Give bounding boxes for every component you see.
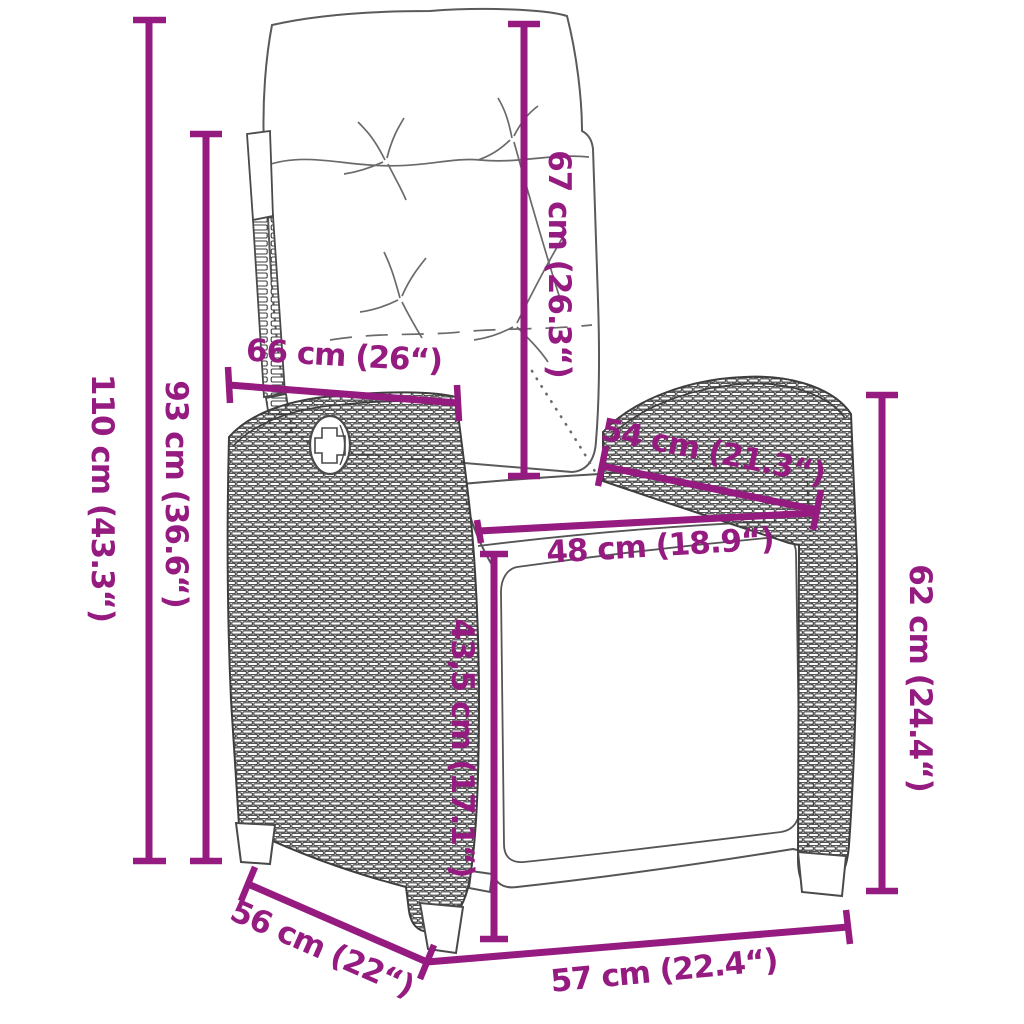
chair-line-drawing — [0, 0, 1024, 1024]
dimension-label-side-height: 62 cm (24.4“) — [902, 564, 938, 792]
dimension-label-back-cushion-length: 67 cm (26.3“) — [541, 150, 577, 378]
dimension-label-footrest-height: 43,5 cm (17.1“) — [444, 619, 480, 878]
dimension-back-height — [190, 134, 222, 861]
dimension-side-height — [866, 395, 898, 891]
dimension-diagram: 110 cm (43.3“) 93 cm (36.6“) 66 cm (26“)… — [0, 0, 1024, 1024]
dimension-label-back-height: 93 cm (36.6“) — [158, 380, 194, 608]
right-leg — [798, 852, 846, 896]
dimension-label-total-height: 110 cm (43.3“) — [84, 374, 120, 622]
rear-left-leg — [236, 823, 275, 864]
front-left-leg — [420, 903, 463, 953]
recline-lever — [310, 416, 350, 474]
